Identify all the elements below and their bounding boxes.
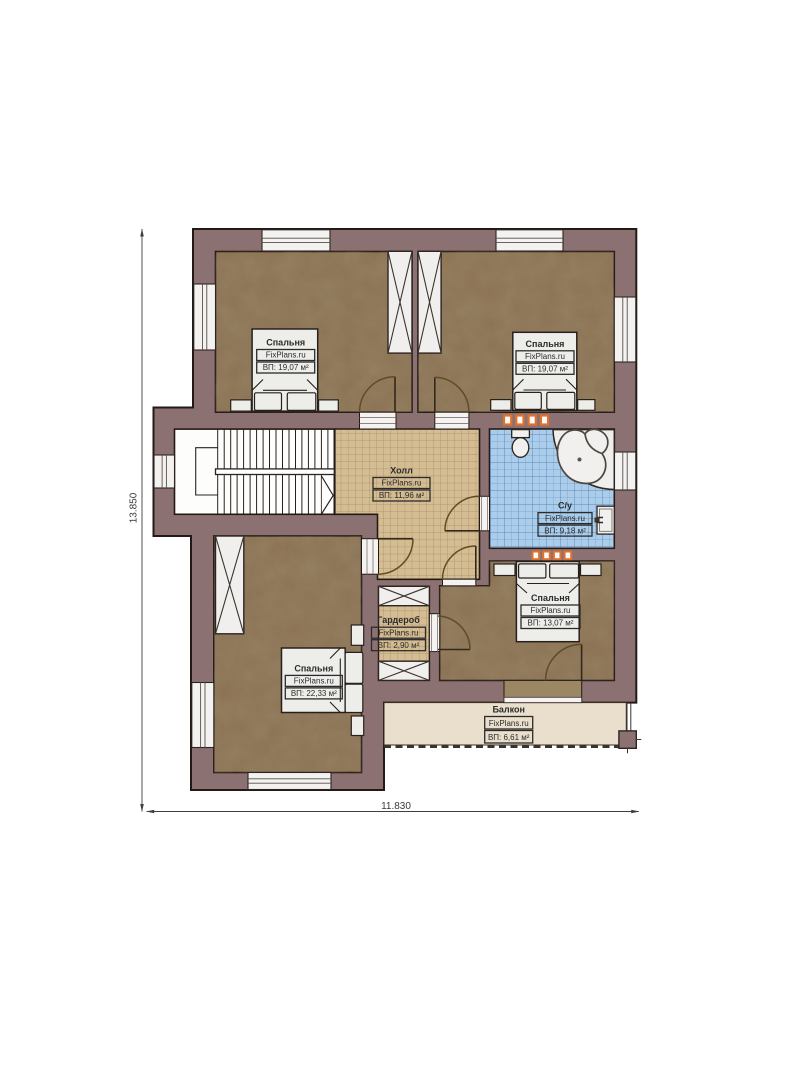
svg-text:Спальня: Спальня (266, 338, 305, 348)
svg-text:11.830: 11.830 (381, 801, 411, 812)
svg-text:Спальня: Спальня (526, 339, 565, 349)
svg-text:FixPlans.ru: FixPlans.ru (525, 352, 565, 361)
svg-text:FixPlans.ru: FixPlans.ru (545, 514, 585, 523)
svg-text:ВП: 6,61 м²: ВП: 6,61 м² (488, 733, 530, 742)
svg-text:ВП: 11,96 м²: ВП: 11,96 м² (379, 491, 425, 500)
svg-text:Балкон: Балкон (492, 705, 525, 715)
svg-text:С/у: С/у (558, 501, 572, 511)
svg-text:FixPlans.ru: FixPlans.ru (294, 677, 334, 686)
svg-text:Спальня: Спальня (531, 593, 570, 603)
svg-text:FixPlans.ru: FixPlans.ru (381, 479, 421, 488)
svg-text:ВП: 9,18 м²: ВП: 9,18 м² (544, 526, 586, 535)
svg-text:ВП: 22,33 м²: ВП: 22,33 м² (291, 689, 337, 698)
svg-text:ВП: 19,07 м²: ВП: 19,07 м² (522, 365, 568, 374)
svg-text:Спальня: Спальня (294, 663, 333, 673)
svg-text:Гардероб: Гардероб (377, 615, 420, 625)
svg-text:FixPlans.ru: FixPlans.ru (378, 628, 418, 637)
svg-text:FixPlans.ru: FixPlans.ru (489, 719, 529, 728)
svg-text:ВП: 19,07 м²: ВП: 19,07 м² (263, 363, 309, 372)
svg-text:ВП: 2,90 м²: ВП: 2,90 м² (378, 641, 420, 650)
svg-text:13.850: 13.850 (129, 492, 140, 523)
svg-text:FixPlans.ru: FixPlans.ru (266, 351, 306, 360)
svg-text:Холл: Холл (390, 466, 413, 476)
svg-text:FixPlans.ru: FixPlans.ru (530, 606, 570, 615)
svg-text:ВП: 13,07 м²: ВП: 13,07 м² (528, 619, 574, 628)
